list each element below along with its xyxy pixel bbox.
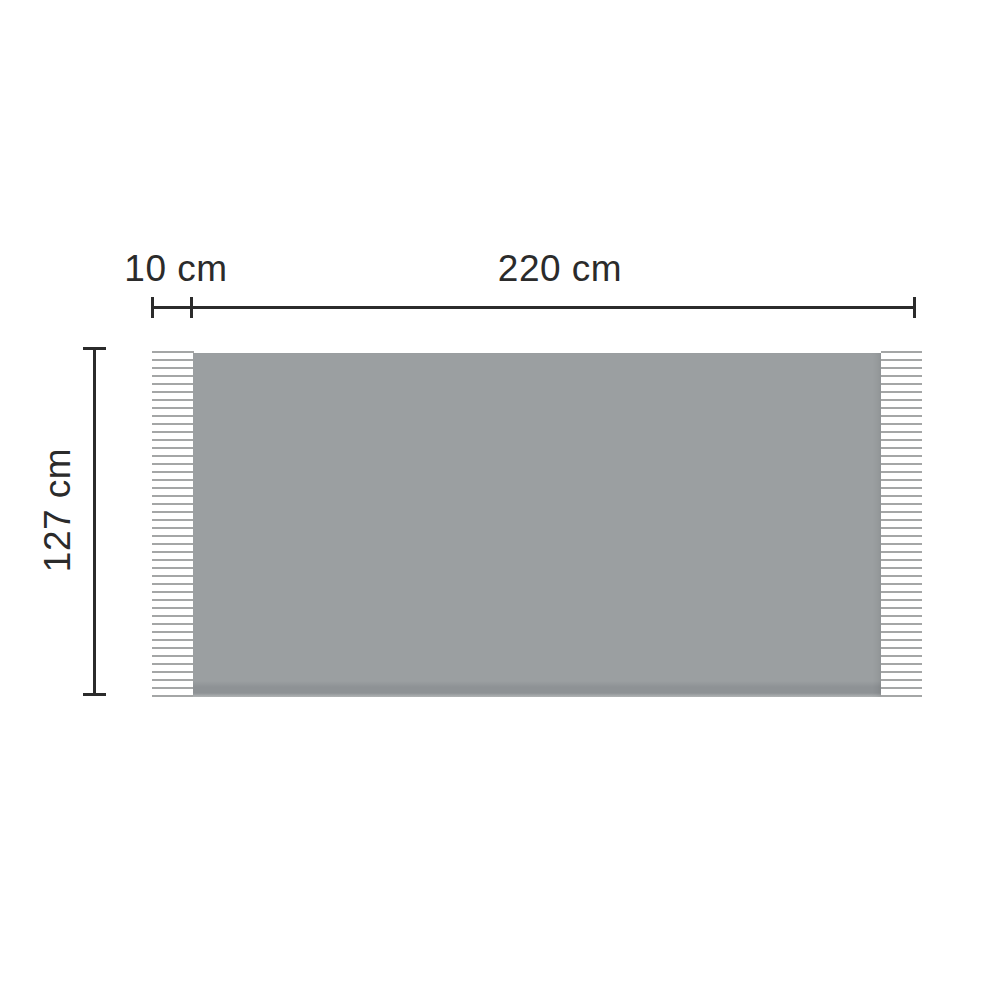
blanket-left-fringe — [152, 351, 194, 702]
dimension-diagram: 10 cm 220 cm 127 cm — [0, 0, 1000, 1000]
width-dimension-line — [152, 306, 915, 309]
width-tick-start — [151, 297, 154, 318]
blanket-right-fringe — [881, 351, 922, 702]
width-tick-end — [913, 297, 916, 318]
height-tick-bottom — [83, 693, 106, 696]
height-tick-top — [83, 347, 106, 350]
fringe-width-label: 10 cm — [124, 250, 227, 287]
blanket-body — [193, 353, 881, 697]
width-tick-fringe-boundary — [190, 297, 193, 318]
height-label: 127 cm — [39, 448, 76, 572]
body-width-label: 220 cm — [498, 250, 622, 287]
height-dimension-line — [93, 348, 96, 696]
